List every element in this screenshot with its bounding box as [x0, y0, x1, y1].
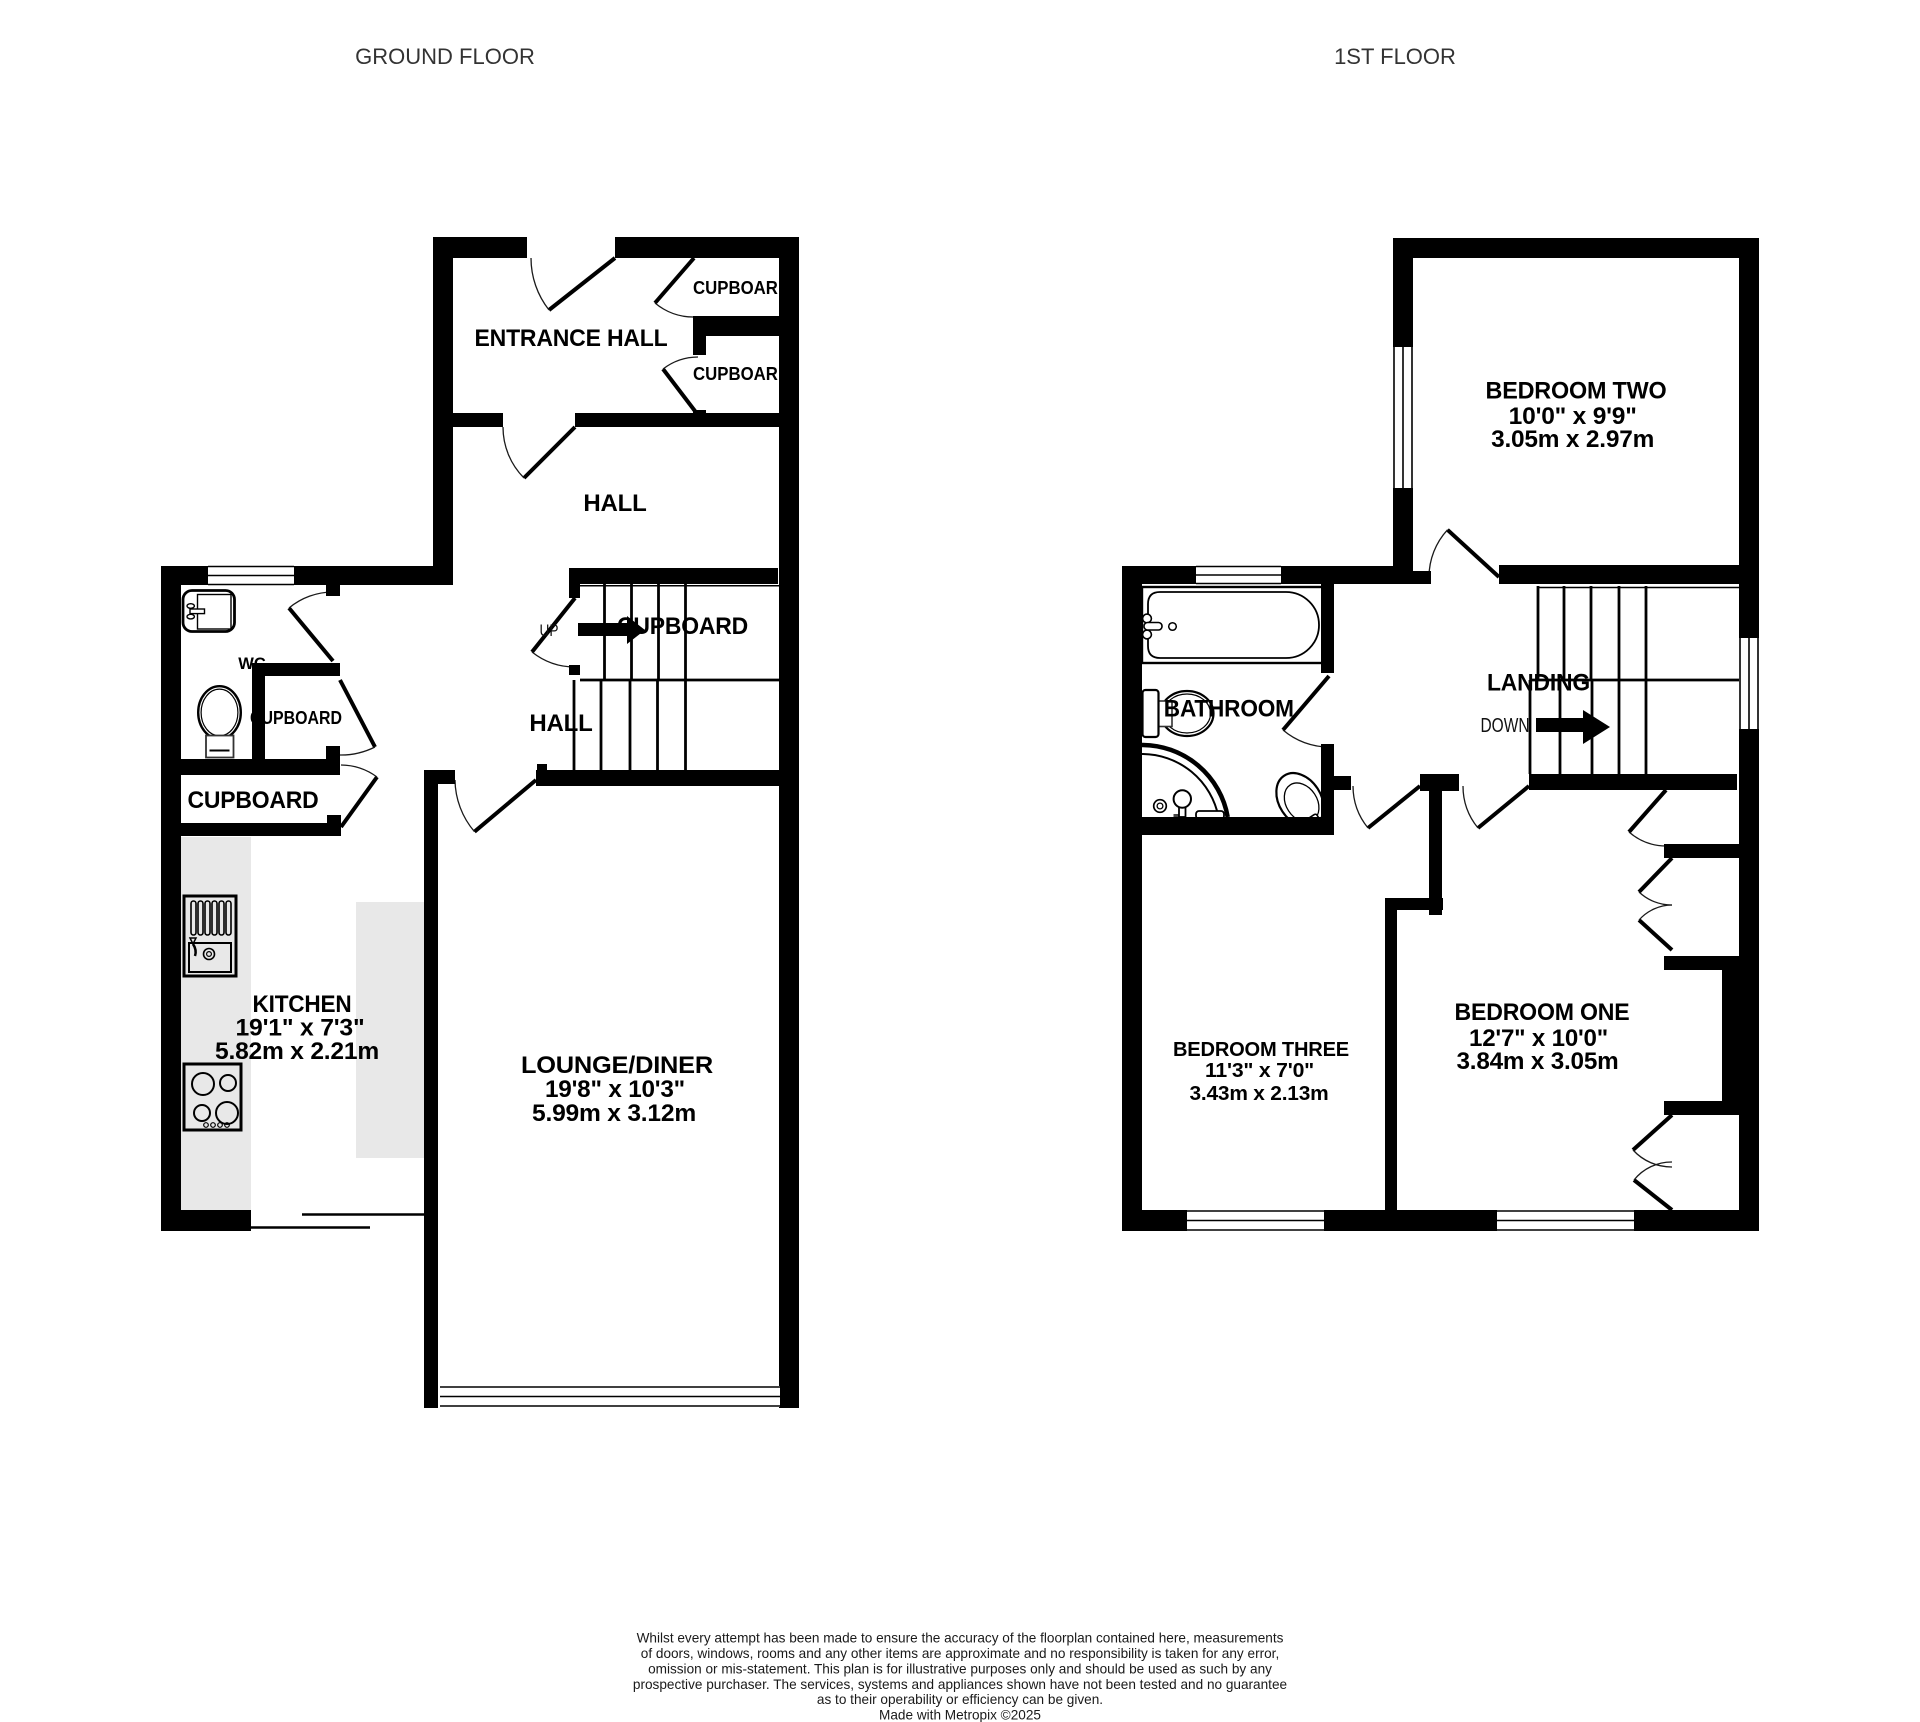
svg-text:as to their operability or eff: as to their operability or efficiency ca…: [817, 1692, 1103, 1707]
svg-text:LOUNGE/DINER: LOUNGE/DINER: [521, 1052, 713, 1079]
svg-text:GROUND FLOOR: GROUND FLOOR: [355, 44, 535, 69]
svg-text:of doors, windows, rooms and a: of doors, windows, rooms and any other i…: [641, 1646, 1279, 1661]
svg-text:CUPBOARD: CUPBOARD: [693, 364, 790, 384]
svg-text:WC: WC: [238, 655, 266, 673]
svg-text:BEDROOM ONE: BEDROOM ONE: [1455, 999, 1630, 1026]
svg-text:UP: UP: [540, 621, 559, 640]
svg-text:HALL: HALL: [583, 490, 646, 517]
svg-text:ENTRANCE HALL: ENTRANCE HALL: [475, 325, 668, 352]
svg-text:CUPBOARD: CUPBOARD: [693, 278, 790, 298]
svg-text:CUPBOARD: CUPBOARD: [188, 787, 319, 814]
svg-text:19'8" x 10'3": 19'8" x 10'3": [545, 1076, 685, 1103]
svg-text:Whilst every attempt has been: Whilst every attempt has been made to en…: [637, 1631, 1284, 1646]
svg-text:5.82m x 2.21m: 5.82m x 2.21m: [215, 1038, 379, 1065]
svg-text:5.99m x 3.12m: 5.99m x 3.12m: [532, 1100, 696, 1127]
svg-text:1ST FLOOR: 1ST FLOOR: [1334, 44, 1456, 69]
svg-text:3.05m x 2.97m: 3.05m x 2.97m: [1491, 426, 1654, 453]
svg-text:11'3" x 7'0": 11'3" x 7'0": [1205, 1060, 1314, 1082]
svg-text:HALL: HALL: [529, 710, 592, 737]
svg-text:BEDROOM TWO: BEDROOM TWO: [1486, 378, 1667, 405]
svg-text:Made with Metropix ©2025: Made with Metropix ©2025: [879, 1708, 1041, 1722]
svg-text:BEDROOM THREE: BEDROOM THREE: [1173, 1039, 1349, 1061]
svg-text:omission or mis-statement. Thi: omission or mis-statement. This plan is …: [648, 1661, 1272, 1676]
svg-text:prospective purchaser. The ser: prospective purchaser. The services, sys…: [633, 1677, 1287, 1692]
svg-text:3.43m x 2.13m: 3.43m x 2.13m: [1190, 1083, 1329, 1105]
svg-text:3.84m x 3.05m: 3.84m x 3.05m: [1457, 1048, 1619, 1075]
svg-text:DOWN: DOWN: [1481, 715, 1530, 737]
svg-text:BATHROOM: BATHROOM: [1164, 696, 1294, 723]
